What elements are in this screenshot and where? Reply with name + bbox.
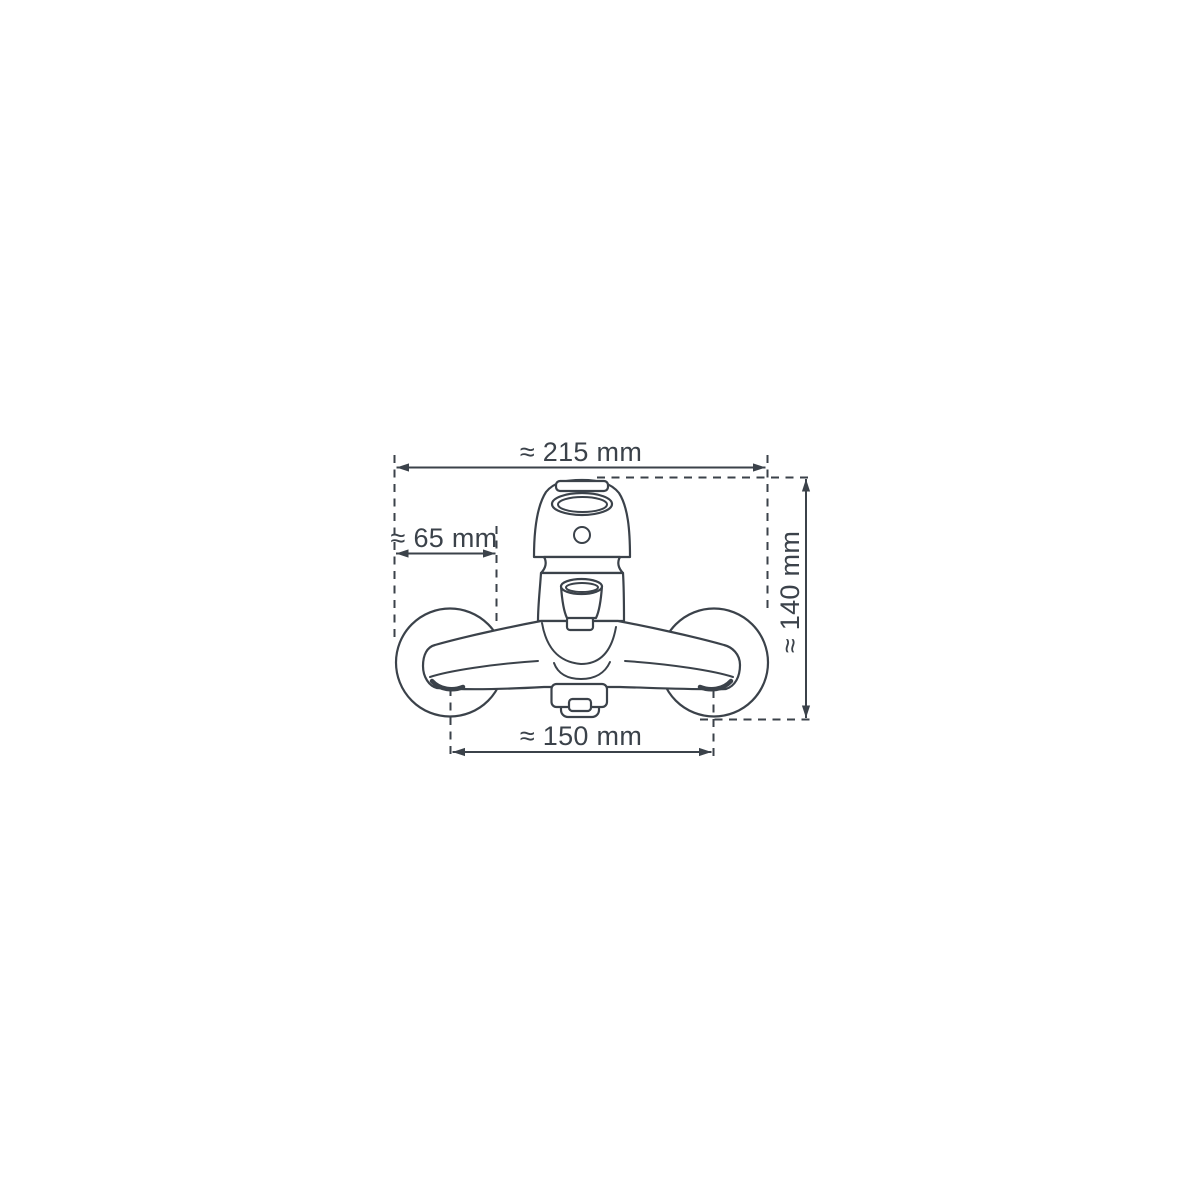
drawing-canvas: ≈ 215 mm ≈ 65 mm ≈ 140 mm ≈ 150 mm bbox=[0, 0, 1200, 1200]
dimension-label-bottom-width: ≈ 150 mm bbox=[520, 721, 642, 751]
dimension-label-top-width: ≈ 215 mm bbox=[520, 437, 642, 467]
dimension-right-height: ≈ 140 mm bbox=[775, 479, 806, 718]
handle-top-tab bbox=[556, 481, 608, 491]
technical-drawing-svg: ≈ 215 mm ≈ 65 mm ≈ 140 mm ≈ 150 mm bbox=[0, 0, 1200, 1200]
dimension-left-width: ≈ 65 mm bbox=[391, 523, 498, 554]
dimension-bottom-width: ≈ 150 mm bbox=[453, 721, 712, 752]
dimension-label-left-width: ≈ 65 mm bbox=[391, 523, 498, 553]
dimension-top-width: ≈ 215 mm bbox=[397, 437, 766, 468]
spout-aerator-tab bbox=[569, 699, 591, 711]
faucet-technical-drawing bbox=[396, 480, 768, 717]
dimension-label-right-height: ≈ 140 mm bbox=[775, 531, 805, 653]
handle-neck bbox=[541, 557, 623, 573]
